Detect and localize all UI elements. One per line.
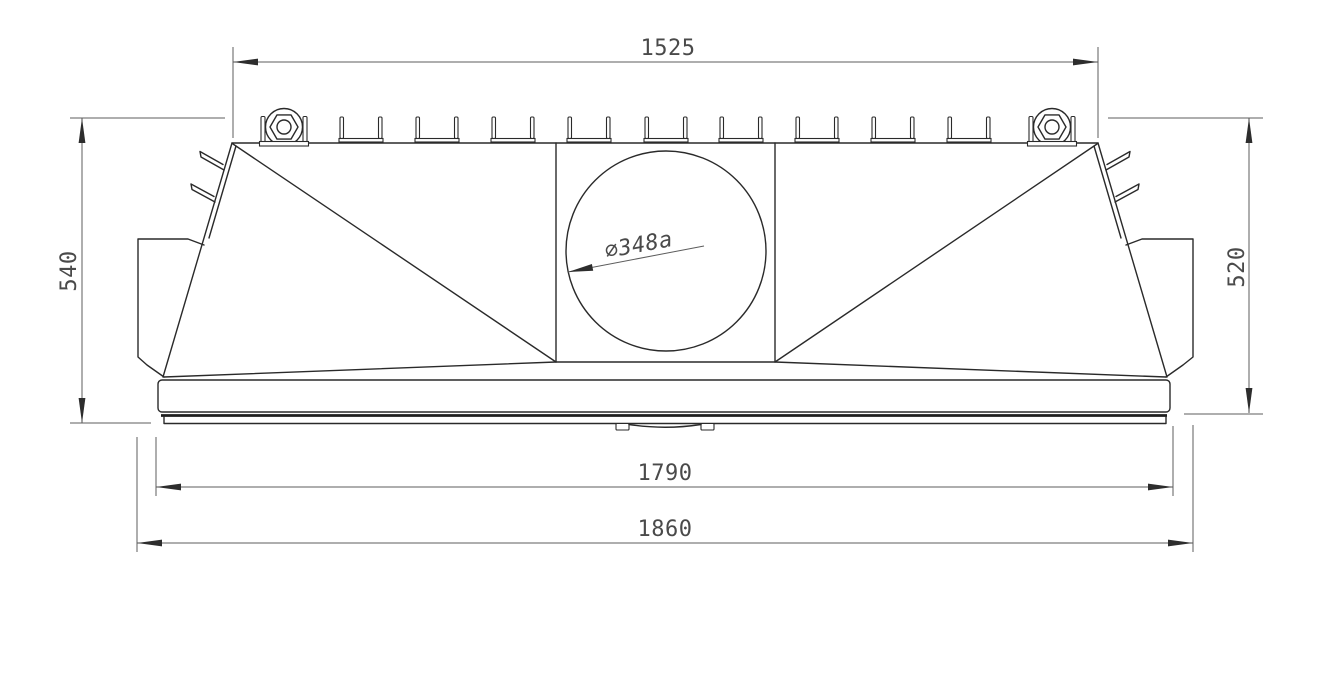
bracket-base — [1028, 142, 1077, 147]
bottom-sag-line — [629, 425, 701, 428]
dimension-right-height: 520 — [1108, 118, 1263, 414]
dimension-overall-base-width: 1860 — [137, 425, 1193, 552]
hood-body — [138, 143, 1193, 377]
arrowhead — [79, 118, 86, 143]
left-side-block — [138, 239, 204, 377]
fold-bottom-left — [164, 362, 556, 377]
dimension-top-width: 1525 — [233, 36, 1098, 138]
left-nut-fastener — [260, 109, 309, 147]
fold-diagonal-right — [775, 144, 1097, 362]
base-strip — [164, 417, 1166, 424]
clip — [415, 117, 459, 142]
extension-line — [70, 118, 225, 423]
clip — [947, 117, 991, 142]
arrowhead — [156, 484, 181, 491]
right-side-block — [1126, 239, 1193, 377]
clip — [719, 117, 763, 142]
drawing-sheet: 1525 540 520 1790 1860 ⌀348a — [0, 0, 1328, 683]
clip — [795, 117, 839, 142]
bracket-base — [260, 142, 309, 147]
arrowhead — [1246, 118, 1253, 143]
body-right-slant — [1098, 143, 1167, 377]
hex-nut — [270, 115, 298, 139]
right-nut-fastener — [1028, 109, 1077, 147]
base-band — [158, 380, 1170, 412]
left-tab-lower — [191, 184, 215, 202]
clip — [491, 117, 535, 142]
fold-bottom-right — [775, 362, 1166, 377]
arrowhead — [1148, 484, 1173, 491]
hex-nut — [1038, 115, 1066, 139]
dimension-value: 1525 — [641, 36, 696, 61]
dimension-value: 540 — [57, 250, 82, 291]
fold-diagonal-left — [233, 144, 556, 362]
nut-washer-circle — [1034, 109, 1071, 146]
bottom-tab-left — [616, 424, 629, 431]
dimension-left-height: 540 — [57, 118, 225, 423]
technical-drawing-canvas: 1525 540 520 1790 1860 ⌀348a — [0, 0, 1328, 683]
dimension-value: 520 — [1225, 246, 1250, 287]
right-tab-upper — [1106, 152, 1130, 171]
right-tab-lower — [1115, 184, 1139, 202]
body-left-slant — [163, 143, 232, 377]
clip — [644, 117, 688, 142]
arrowhead — [233, 59, 258, 66]
nut-washer-circle — [266, 109, 303, 146]
clip — [871, 117, 915, 142]
top-clips — [339, 117, 991, 142]
clip — [567, 117, 611, 142]
clip — [339, 117, 383, 142]
arrowhead — [137, 540, 162, 547]
arrowhead — [1168, 540, 1193, 547]
dimension-value: 1790 — [638, 461, 693, 486]
nut-bore-circle — [277, 120, 291, 134]
body-left-slant-inner — [209, 146, 236, 238]
arrowhead — [1246, 388, 1253, 413]
arrowhead — [568, 264, 593, 272]
arrowhead — [1073, 59, 1098, 66]
nut-bore-circle — [1045, 120, 1059, 134]
base-plate — [158, 380, 1170, 430]
arrowhead — [79, 398, 86, 423]
body-right-slant-inner — [1094, 146, 1121, 238]
dimension-inner-base-width: 1790 — [156, 426, 1173, 496]
dimension-hole-diameter: ⌀348a — [568, 227, 704, 272]
bottom-tab-right — [701, 424, 714, 431]
left-tab-upper — [200, 152, 224, 171]
dimension-value: 1860 — [638, 517, 693, 542]
